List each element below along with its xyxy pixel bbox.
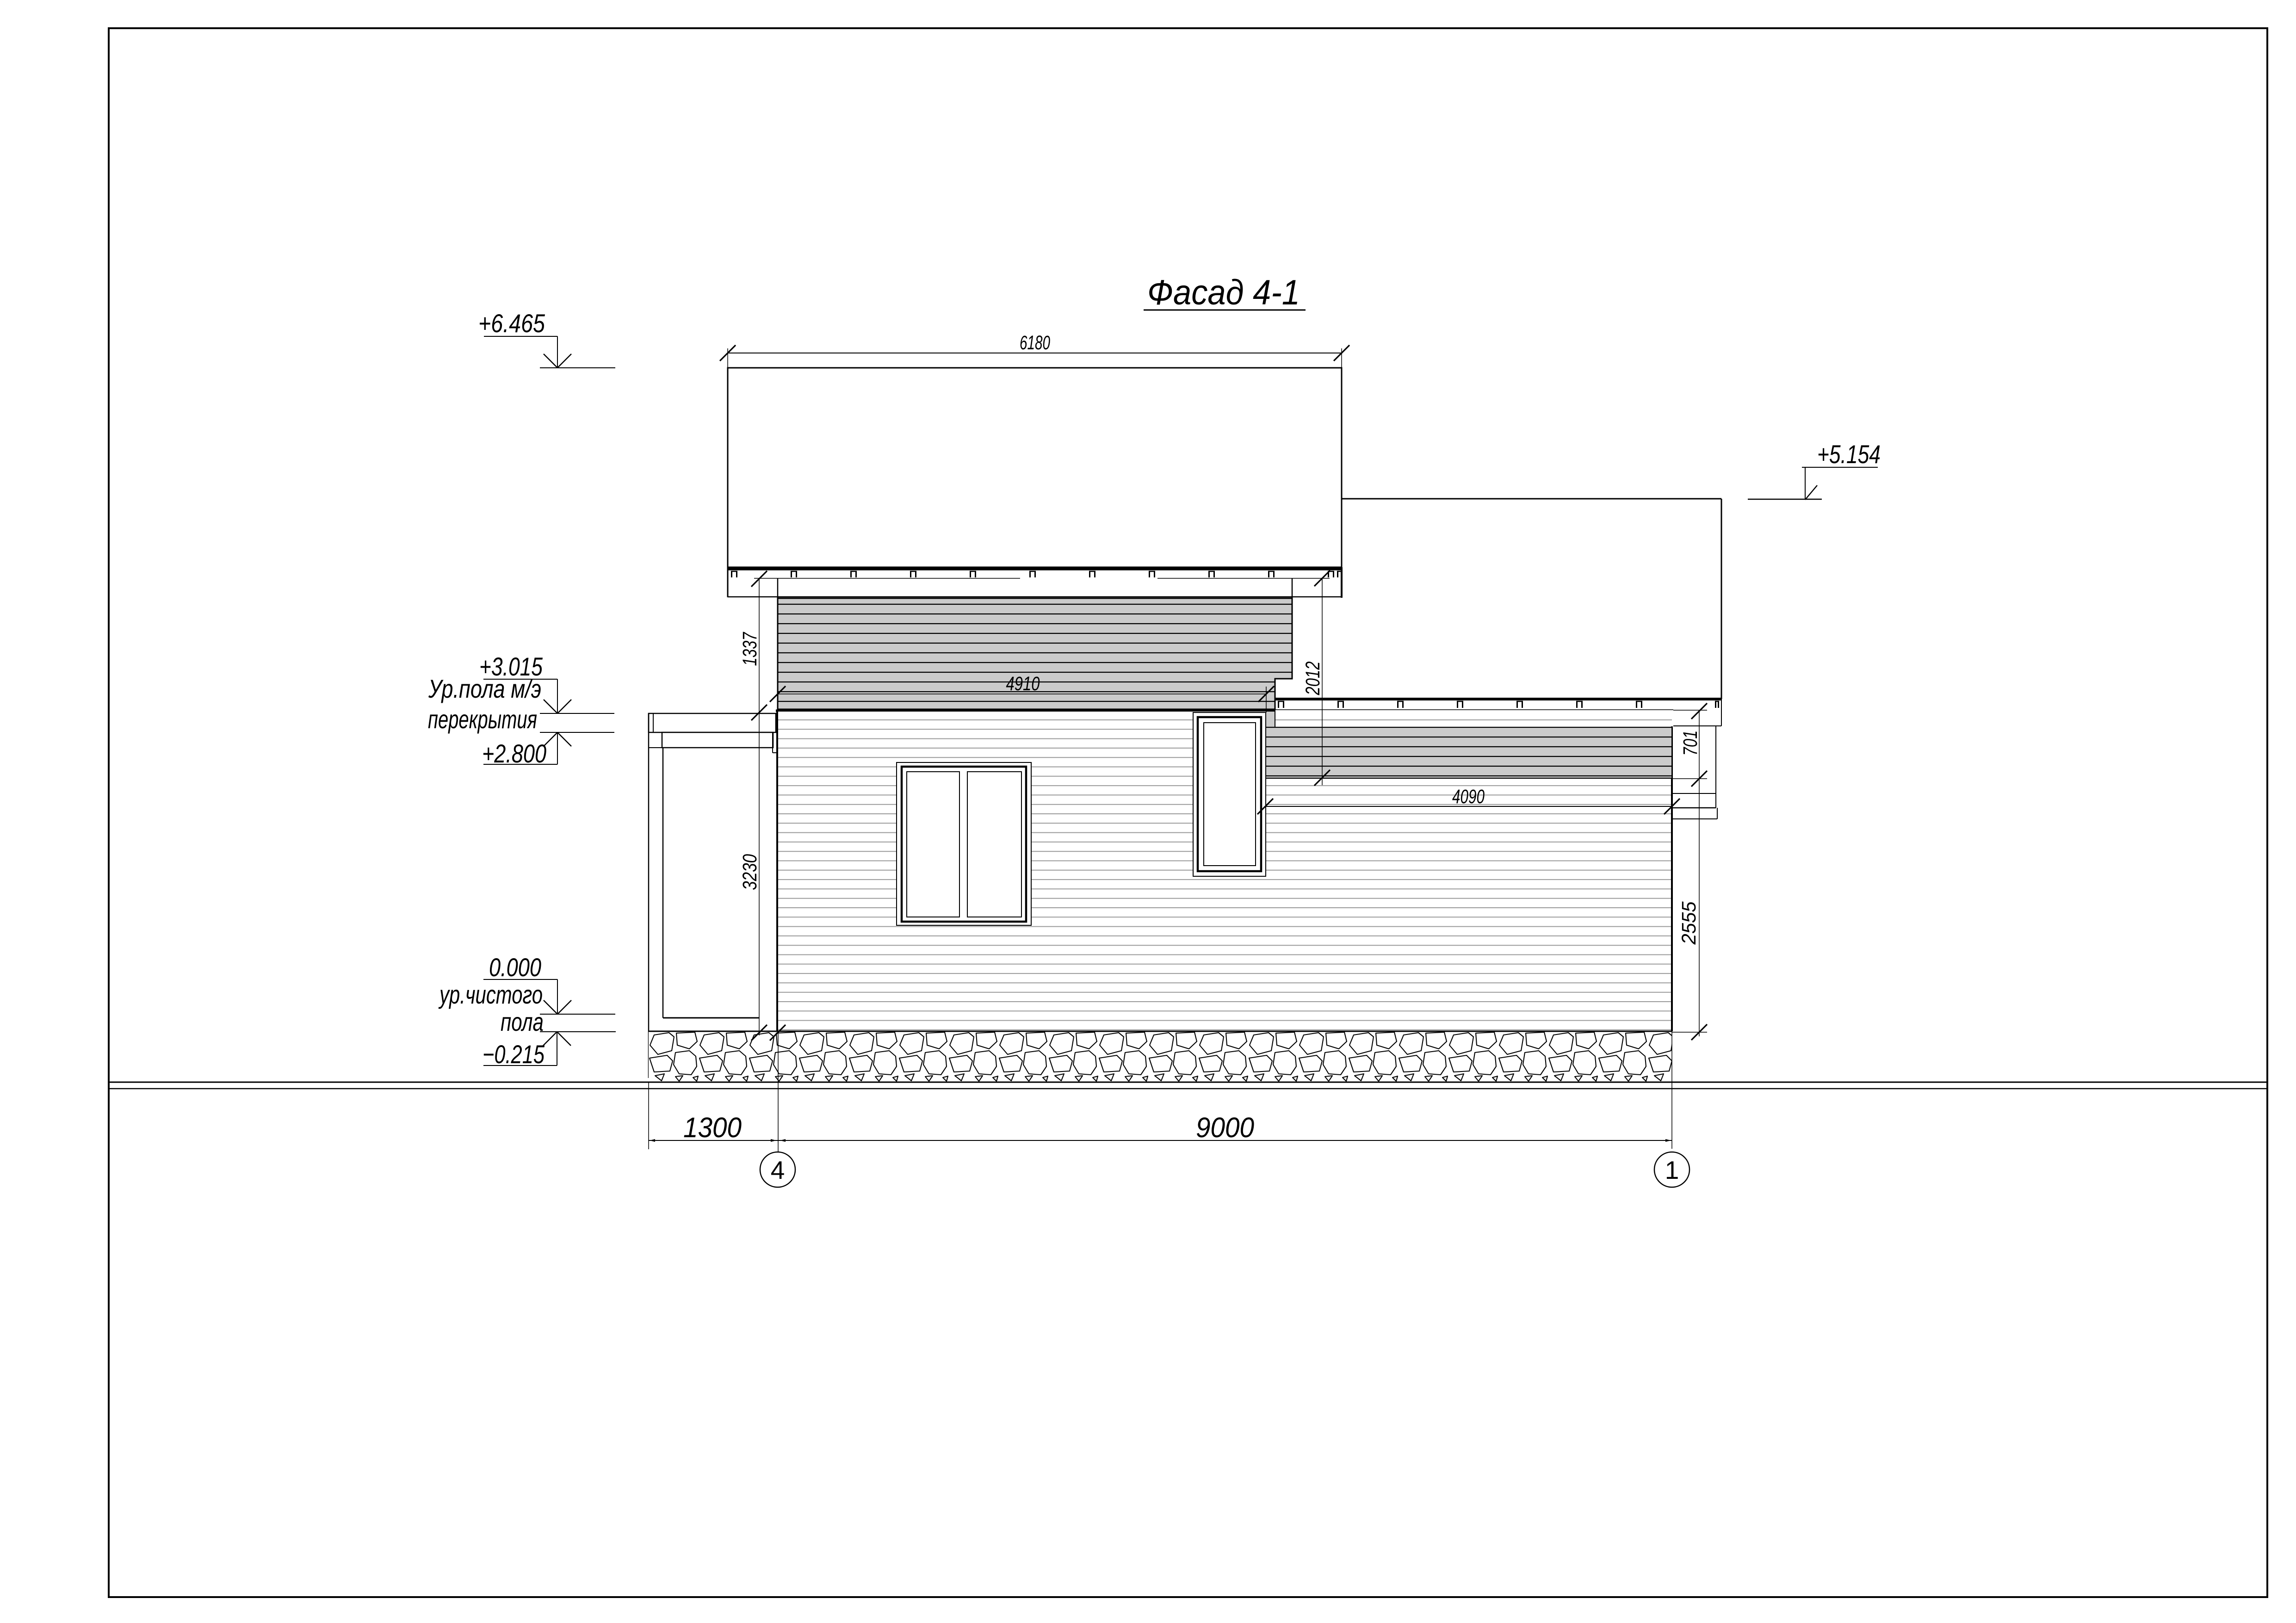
svg-text:ур.чистого: ур.чистого <box>438 980 543 1009</box>
svg-text:701: 701 <box>1679 731 1702 756</box>
svg-text:2555: 2555 <box>1678 901 1700 945</box>
svg-text:+2.800: +2.800 <box>482 739 546 768</box>
svg-text:1: 1 <box>1665 1156 1679 1184</box>
svg-text:0.000: 0.000 <box>489 953 541 982</box>
svg-text:+5.154: +5.154 <box>1817 440 1881 469</box>
svg-text:Ур.пола м/э: Ур.пола м/э <box>428 674 541 703</box>
svg-text:9000: 9000 <box>1196 1112 1254 1143</box>
svg-text:+6.465: +6.465 <box>478 309 545 338</box>
svg-text:6180: 6180 <box>1020 332 1050 354</box>
svg-text:Фасад 4-1: Фасад 4-1 <box>1147 273 1300 312</box>
svg-text:1337: 1337 <box>739 632 761 666</box>
svg-text:4090: 4090 <box>1452 786 1485 808</box>
svg-text:−0.215: −0.215 <box>483 1040 545 1069</box>
svg-text:1300: 1300 <box>683 1112 742 1143</box>
svg-text:2012: 2012 <box>1302 661 1324 695</box>
svg-text:пола: пола <box>501 1007 544 1036</box>
svg-text:4: 4 <box>771 1156 785 1184</box>
svg-text:3230: 3230 <box>739 854 761 890</box>
svg-text:4910: 4910 <box>1006 673 1040 695</box>
svg-text:перекрытия: перекрытия <box>428 705 537 734</box>
